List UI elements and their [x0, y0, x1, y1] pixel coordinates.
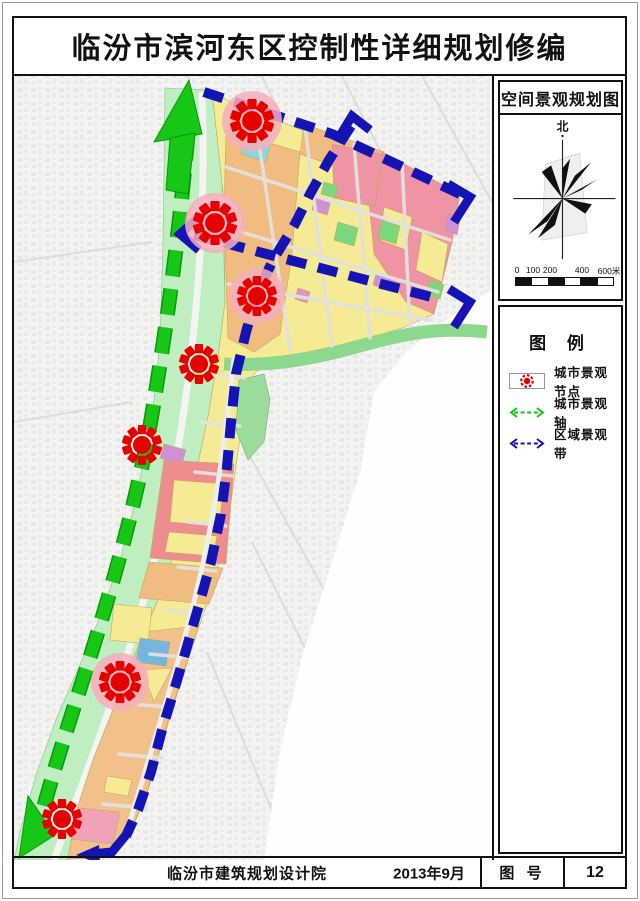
planning-sheet: 临汾市滨河东区控制性详细规划修编: [0, 0, 640, 901]
institute-name: 临汾市建筑规划设计院: [167, 862, 327, 883]
compass-rose: 北: [500, 115, 625, 265]
planning-map: [14, 76, 492, 860]
node-icon: [509, 373, 545, 389]
right-panel: 空间景观规划图 北: [492, 76, 625, 860]
map-title: 空间景观规划图: [501, 86, 620, 110]
legend-item-belt: 区域景观带: [509, 432, 621, 454]
scale-label: 400: [575, 265, 589, 275]
scale-bar: 0 100 200 400 600米: [515, 265, 615, 287]
legend-item-node: 城市景观节点: [509, 370, 621, 392]
title-bar: 临汾市滨河东区控制性详细规划修编: [14, 18, 625, 76]
legend-items: 城市景观节点 城市景观轴: [500, 370, 621, 454]
sheet-number-value: 12: [563, 858, 625, 887]
drawing-date: 2013年9月: [393, 862, 465, 883]
map-title-box: 空间景观规划图: [498, 80, 623, 115]
belt-icon: [509, 437, 545, 450]
legend-item-axis: 城市景观轴: [509, 401, 621, 423]
scale-bar-segments: [515, 277, 614, 286]
axis-icon: [509, 406, 545, 419]
scale-label: 200: [543, 265, 557, 275]
compass-north-label: 北: [557, 119, 569, 133]
legend-label: 区域景观带: [554, 424, 621, 462]
drawing-frame: 临汾市滨河东区控制性详细规划修编: [12, 16, 627, 889]
legend-box: 图 例 城市景观节点: [498, 305, 623, 854]
map-area: [14, 76, 492, 860]
scale-label: 0: [515, 265, 520, 275]
compass-box: 北: [498, 113, 623, 301]
sheet-number-label: 图 号: [480, 858, 563, 887]
scale-label: 600米: [598, 265, 621, 277]
scale-label: 100: [526, 265, 540, 275]
title-block-footer: 临汾市建筑规划设计院 2013年9月 图 号 12: [14, 856, 625, 887]
footer-main-cell: 临汾市建筑规划设计院 2013年9月: [14, 858, 480, 887]
scale-labels: 0 100 200 400 600米: [515, 265, 615, 275]
page-title: 临汾市滨河东区控制性详细规划修编: [71, 25, 567, 67]
legend-title: 图 例: [500, 329, 621, 354]
